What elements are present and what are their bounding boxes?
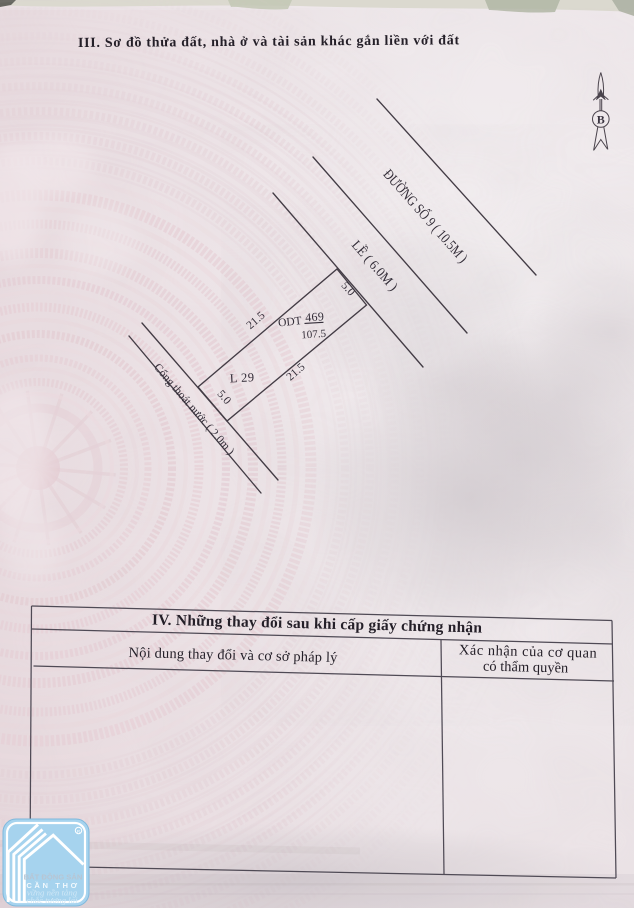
svg-text:BẤT ĐỘNG SẢN: BẤT ĐỘNG SẢN [24,872,83,882]
svg-text:có thẩm quyền: có thẩm quyền [483,658,569,676]
svg-text:107.5: 107.5 [301,328,327,342]
svg-text:III. Sơ đồ thửa đất, nhà ở và: III. Sơ đồ thửa đất, nhà ở và tài sản kh… [78,33,460,51]
svg-text:B: B [597,113,605,127]
svg-text:L 29: L 29 [229,370,254,385]
svg-text:ODT: ODT [278,315,303,329]
svg-text:chắc tương lai: chắc tương lai [26,895,78,905]
